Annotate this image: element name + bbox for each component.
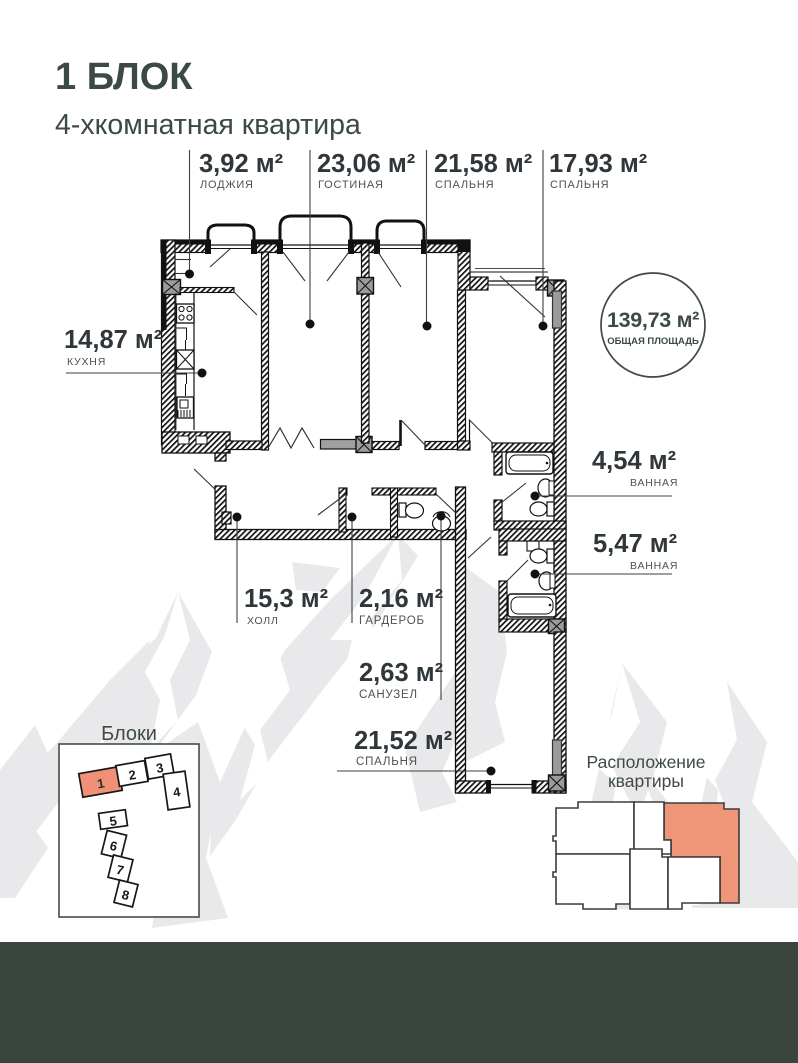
svg-text:ГАРДЕРОБ: ГАРДЕРОБ bbox=[359, 615, 425, 627]
svg-text:САНУЗЕЛ: САНУЗЕЛ bbox=[359, 689, 418, 701]
svg-text:2,16 м²: 2,16 м² bbox=[359, 585, 443, 613]
svg-text:ВАННАЯ: ВАННАЯ bbox=[630, 560, 678, 572]
svg-text:5,47 м²: 5,47 м² bbox=[593, 530, 677, 558]
svg-text:КУХНЯ: КУХНЯ bbox=[67, 356, 106, 368]
svg-text:21,58 м²: 21,58 м² bbox=[434, 150, 532, 178]
svg-text:СПАЛЬНЯ: СПАЛЬНЯ bbox=[356, 756, 418, 768]
svg-text:4-хкомнатная квартира: 4-хкомнатная квартира bbox=[55, 109, 361, 141]
svg-text:СПАЛЬНЯ: СПАЛЬНЯ bbox=[435, 179, 494, 191]
svg-text:17,93 м²: 17,93 м² bbox=[549, 150, 647, 178]
svg-text:квартиры: квартиры bbox=[608, 771, 684, 791]
svg-text:ВАННАЯ: ВАННАЯ bbox=[630, 477, 678, 489]
svg-text:ОБЩАЯ ПЛОЩАДЬ: ОБЩАЯ ПЛОЩАДЬ bbox=[607, 336, 699, 347]
svg-text:1 БЛОК: 1 БЛОК bbox=[55, 56, 193, 98]
svg-text:4,54 м²: 4,54 м² bbox=[592, 447, 676, 475]
svg-text:14,87 м²: 14,87 м² bbox=[64, 326, 162, 354]
svg-text:15,3 м²: 15,3 м² bbox=[244, 585, 328, 613]
svg-text:21,52 м²: 21,52 м² bbox=[354, 727, 452, 755]
svg-text:ЛОДЖИЯ: ЛОДЖИЯ bbox=[200, 179, 254, 191]
svg-text:ГОСТИНАЯ: ГОСТИНАЯ bbox=[318, 179, 384, 191]
svg-text:139,73 м²: 139,73 м² bbox=[607, 308, 699, 332]
svg-text:2,63 м²: 2,63 м² bbox=[359, 659, 443, 687]
svg-text:ХОЛЛ: ХОЛЛ bbox=[247, 615, 279, 627]
svg-text:23,06 м²: 23,06 м² bbox=[317, 150, 415, 178]
svg-text:Блоки: Блоки bbox=[101, 723, 157, 745]
svg-text:Расположение: Расположение bbox=[587, 752, 706, 772]
svg-text:3,92 м²: 3,92 м² bbox=[199, 150, 283, 178]
svg-text:СПАЛЬНЯ: СПАЛЬНЯ bbox=[550, 179, 609, 191]
